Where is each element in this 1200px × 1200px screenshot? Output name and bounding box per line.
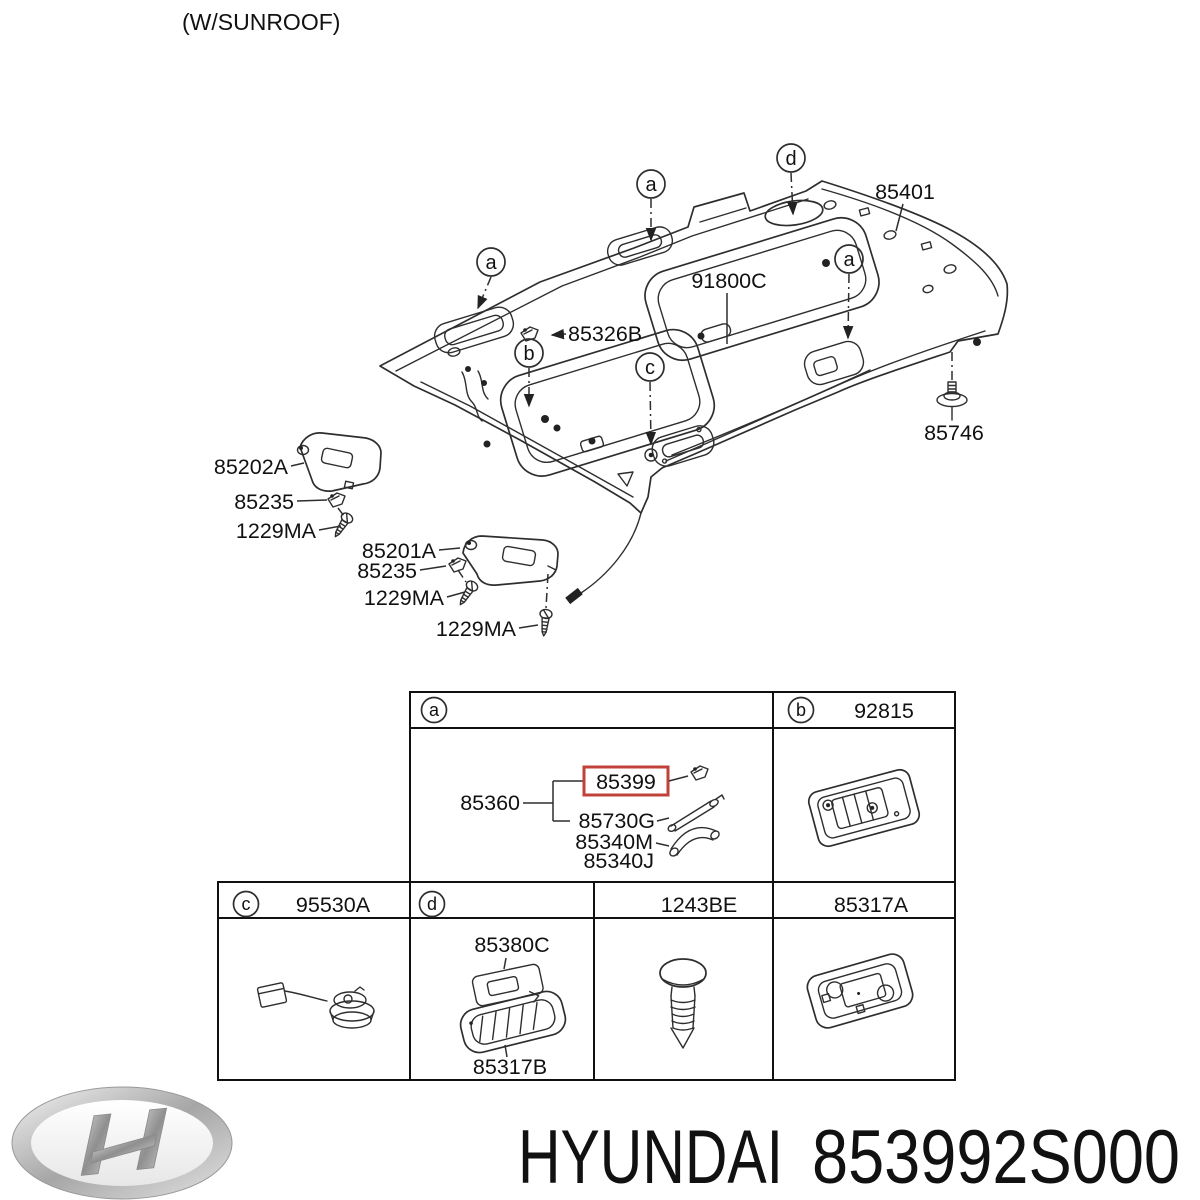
mount-dot [481, 380, 487, 386]
part-95530A: 95530A [296, 893, 371, 917]
table-letter-c: c [242, 894, 251, 914]
label-visor-lh-clip: 85235 [234, 490, 294, 514]
footer: HYUNDAI 853992S000 [12, 1087, 1180, 1200]
callout-b: b [523, 343, 534, 365]
label-visor-lh: 85202A [214, 455, 289, 479]
handle-mount-left [431, 304, 516, 356]
mount-dot [822, 259, 830, 267]
visor-clip-lh-icon [328, 493, 345, 507]
visor-pivot-screw-icon [538, 609, 553, 637]
room-lamp-icon [457, 988, 569, 1056]
sunroof-note: (W/SUNROOF) [182, 9, 340, 35]
console-bracket-line [700, 208, 746, 222]
roof-hole [883, 230, 897, 241]
clip-screw-link-lh [338, 508, 344, 516]
mount-dot [554, 425, 561, 432]
label-visor-pivot-screw: 1229MA [436, 617, 517, 641]
roof-hole [922, 284, 933, 293]
mount-dot [589, 438, 596, 445]
handle-mount-center [649, 423, 717, 470]
assist-handle-icon [668, 828, 720, 858]
roof-hole [823, 200, 837, 211]
label-fastener: 85746 [924, 421, 984, 445]
sensor-icon [257, 983, 374, 1028]
part-85340J: 85340J [583, 849, 654, 873]
part-85360: 85360 [460, 791, 520, 815]
roof-clip [921, 242, 931, 250]
part-92815: 92815 [854, 699, 914, 723]
visor-clip-rh-icon [449, 558, 466, 572]
lamp-base-icon [804, 951, 915, 1030]
part-85317A: 85317A [834, 893, 909, 917]
sun-visor-lh-drawing [298, 433, 382, 491]
visor-screw-lh-icon [330, 511, 354, 540]
table-letter-d: d [427, 894, 437, 914]
table-letter-b: b [796, 700, 806, 720]
roof-clip [859, 208, 869, 216]
overhead-console-icon [807, 767, 922, 848]
label-visor-rh-clip: 85235 [357, 559, 417, 583]
brand-name: HYUNDAI [518, 1115, 783, 1200]
grommet-center [649, 453, 654, 458]
roof-hole [943, 264, 957, 275]
mount-dot [698, 333, 705, 340]
part-1243BE: 1243BE [661, 893, 738, 917]
sun-visor-rh-drawing [463, 536, 558, 585]
callout-c: c [645, 357, 655, 379]
diagram-canvas: (W/SUNROOF) [0, 0, 1200, 1200]
table-letter-a: a [429, 700, 440, 720]
callout-d: d [785, 148, 796, 170]
part-85399-highlighted: 85399 [596, 770, 656, 794]
mount-dot [465, 366, 471, 372]
callout-a-left: a [485, 252, 497, 274]
strap-icon [667, 795, 724, 833]
mount-dot [973, 338, 981, 346]
callout-a-rear: a [843, 249, 855, 271]
roof-surface-contour [672, 370, 870, 455]
diagram-labels: 85401 91800C 85326B 85746 85202A 85235 1… [214, 180, 984, 641]
fastener-85746-icon [937, 352, 967, 420]
drain-wire [581, 513, 641, 593]
roof-notch [618, 472, 633, 486]
label-roof-panel: 85401 [875, 180, 935, 204]
mount-dot [484, 441, 491, 448]
part-85380C: 85380C [474, 933, 549, 957]
label-visor-rh-screw: 1229MA [364, 586, 445, 610]
callout-a-front: a [645, 174, 657, 196]
label-sunroof: 91800C [691, 269, 766, 293]
label-visor-lh-screw: 1229MA [236, 519, 317, 543]
hyundai-logo [12, 1087, 232, 1199]
handle-mount-rear [801, 338, 866, 387]
wire-end [565, 588, 583, 604]
parts-table: a b 92815 c 95530A d 1243BE 85317A 85360… [218, 692, 955, 1080]
tapping-screw-icon [660, 959, 706, 1048]
roof-inner-left-line [421, 382, 633, 497]
label-retainer: 85326B [568, 322, 642, 346]
clip-screw-link-rh [458, 570, 466, 582]
parts-catalog-page: { "page": { "note": "(W/SUNROOF)" }, "co… [0, 0, 1200, 1200]
mount-dot [541, 415, 549, 423]
retainer-small-icon [691, 766, 708, 780]
part-number: 853992S000 [812, 1115, 1180, 1200]
part-85317B: 85317B [473, 1055, 547, 1079]
